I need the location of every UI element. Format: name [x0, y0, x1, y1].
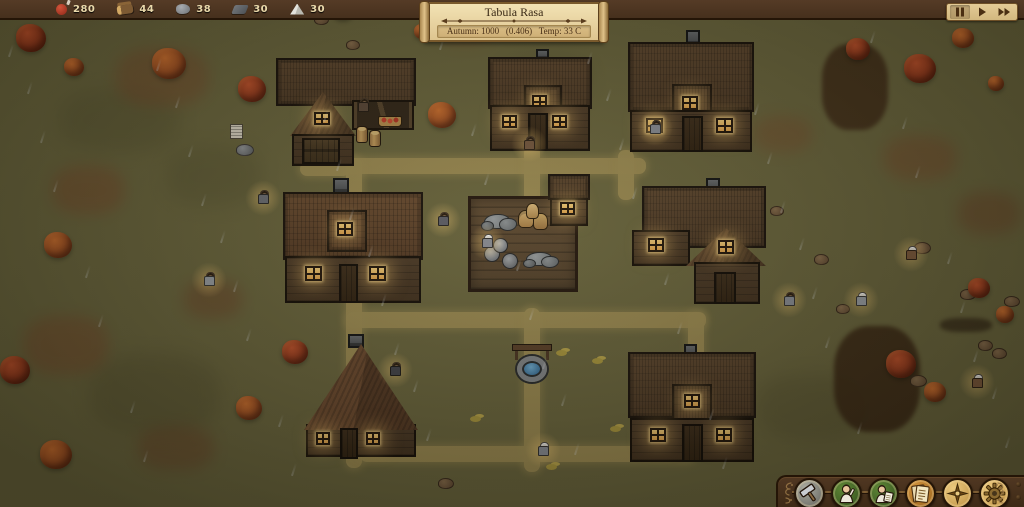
- autumn-tree[interactable]: [968, 278, 990, 298]
- door: [340, 428, 358, 459]
- build-menu-button[interactable]: [794, 478, 825, 507]
- door: [339, 264, 358, 303]
- window-lit: [716, 118, 733, 133]
- window-lit: [337, 222, 353, 236]
- window-lit: [314, 112, 330, 125]
- window-lit: [305, 266, 322, 281]
- autumn-tree[interactable]: [886, 350, 916, 378]
- door: [302, 138, 340, 164]
- resource-berries: 280: [56, 4, 95, 15]
- window-lit: [366, 432, 380, 445]
- sack-pile: [518, 210, 534, 228]
- autumn-tree[interactable]: [952, 28, 974, 48]
- window-lit: [650, 428, 666, 442]
- villager-icon: [833, 480, 860, 507]
- autumn-tree[interactable]: [238, 76, 266, 102]
- villager-body: [906, 250, 917, 260]
- ground-patch: [958, 192, 1020, 234]
- logs-icon: [117, 3, 134, 14]
- autumn-tree[interactable]: [904, 54, 936, 83]
- small-rock: [910, 375, 927, 387]
- season-status: Autumn: 1000 (0.406) Temp: 33 C: [437, 25, 591, 38]
- door: [714, 272, 736, 304]
- autumn-tree[interactable]: [428, 102, 456, 128]
- limestone-icon: [290, 4, 304, 15]
- villager[interactable]: [856, 292, 866, 306]
- barrel: [369, 130, 381, 147]
- resource-count: 30: [310, 4, 325, 15]
- villager-body: [538, 446, 549, 456]
- window-lit: [648, 238, 664, 252]
- stone-pile: [526, 252, 552, 266]
- window-lit: [502, 115, 517, 128]
- bottom-toolbar: [776, 475, 1024, 507]
- resource-logs: 44: [117, 4, 154, 15]
- villager-body: [258, 194, 269, 204]
- flourish-ornament: [994, 480, 1008, 506]
- villager[interactable]: [784, 292, 794, 306]
- storage-hut[interactable]: [548, 174, 590, 226]
- well-roof: [512, 344, 552, 351]
- papers-icon: [907, 480, 934, 507]
- villager[interactable]: [906, 246, 916, 260]
- villager-body: [438, 216, 449, 226]
- villager[interactable]: [358, 98, 368, 112]
- time-controls: [946, 3, 1018, 21]
- villager-body: [204, 276, 215, 286]
- professions-menu-button[interactable]: [868, 478, 899, 507]
- autumn-tree[interactable]: [282, 340, 308, 364]
- autumn-tree[interactable]: [988, 76, 1004, 91]
- ground-patch: [834, 326, 920, 432]
- fast-forward-button[interactable]: [994, 5, 1014, 19]
- window-lit: [682, 96, 698, 110]
- autumn-tree[interactable]: [996, 306, 1014, 323]
- ground-patch: [24, 316, 108, 374]
- toolbar-buttons: [794, 478, 1010, 507]
- villager-body: [650, 124, 661, 134]
- autumn-tree[interactable]: [0, 356, 30, 384]
- window-lit: [560, 202, 575, 215]
- hay-tuft: [592, 358, 603, 364]
- ground-patch: [90, 354, 220, 434]
- resource-count: 44: [139, 4, 154, 15]
- window-lit: [716, 428, 732, 442]
- autumn-tree[interactable]: [44, 232, 72, 258]
- house-bottom-right[interactable]: [628, 344, 756, 462]
- autumn-tree[interactable]: [40, 440, 72, 469]
- resource-slate: 30: [233, 4, 268, 15]
- world-map-button[interactable]: [942, 478, 973, 507]
- door: [682, 424, 703, 462]
- resource-count: 280: [73, 4, 95, 15]
- barrel: [356, 126, 368, 143]
- house-top-right[interactable]: [628, 30, 754, 152]
- house-top-center[interactable]: [488, 49, 592, 151]
- game-viewport: 28044383030 Tabula Rasa Autumn: 1000 (0.…: [0, 0, 1024, 507]
- autumn-tree[interactable]: [16, 24, 46, 52]
- hay-tuft: [546, 464, 557, 470]
- resource-count: 30: [253, 4, 268, 15]
- posted-sign[interactable]: [230, 124, 243, 139]
- toolbar-rivets: [1016, 482, 1021, 500]
- resource-list: 28044383030: [0, 4, 325, 15]
- villager[interactable]: [482, 234, 492, 248]
- villager-body: [358, 102, 369, 112]
- villager-body: [482, 238, 493, 248]
- autumn-tree[interactable]: [152, 48, 186, 79]
- villager-body: [784, 296, 795, 306]
- villager[interactable]: [438, 212, 448, 226]
- window-lit: [369, 266, 386, 281]
- villager[interactable]: [972, 374, 982, 388]
- small-rock: [236, 144, 254, 156]
- roof: [548, 174, 590, 200]
- slate-icon: [231, 5, 249, 14]
- door: [682, 116, 703, 152]
- villager[interactable]: [390, 362, 400, 376]
- small-rock: [814, 254, 829, 265]
- hay-tuft: [470, 416, 481, 422]
- resource-count: 38: [196, 4, 211, 15]
- barrel-cluster: [484, 246, 500, 262]
- villager-body: [972, 378, 983, 388]
- villager[interactable]: [258, 190, 268, 204]
- hay-tuft: [556, 350, 567, 356]
- villager-body: [856, 296, 867, 306]
- house-bottom-left[interactable]: [302, 332, 420, 460]
- village-map: [0, 0, 1024, 507]
- stone-pile: [484, 214, 510, 229]
- pause-button[interactable]: [950, 5, 970, 19]
- autumn-tree[interactable]: [924, 382, 946, 402]
- window-lit: [684, 394, 700, 408]
- villager[interactable]: [538, 442, 548, 456]
- villager[interactable]: [204, 272, 214, 286]
- villager-scroll-icon: [870, 480, 897, 507]
- well[interactable]: [510, 342, 554, 386]
- small-rock: [992, 348, 1007, 359]
- hammer-icon: [796, 480, 823, 507]
- villager[interactable]: [524, 136, 534, 150]
- villagers-menu-button[interactable]: [831, 478, 862, 507]
- resource-stone: 38: [176, 4, 211, 15]
- settlement-banner: Tabula Rasa Autumn: 1000 (0.406) Temp: 3…: [423, 2, 605, 42]
- ground-patch: [138, 426, 214, 470]
- hay-tuft: [610, 426, 621, 432]
- berry-icon: [56, 4, 67, 15]
- small-rock: [346, 40, 360, 50]
- compass-icon: [944, 480, 971, 507]
- small-rock: [836, 304, 850, 314]
- autumn-tree[interactable]: [236, 396, 262, 420]
- autumn-tree[interactable]: [64, 58, 84, 76]
- gable-roof: [304, 344, 418, 430]
- window-lit: [718, 240, 734, 254]
- house-mid-right[interactable]: [632, 178, 766, 306]
- window-lit: [316, 432, 330, 445]
- small-rock: [770, 206, 784, 216]
- villager[interactable]: [650, 120, 660, 134]
- villager-body: [390, 366, 401, 376]
- well-basin: [517, 356, 547, 382]
- tasks-menu-button[interactable]: [905, 478, 936, 507]
- rivet: [1016, 495, 1021, 500]
- autumn-tree[interactable]: [846, 38, 870, 60]
- ground-patch: [754, 116, 812, 152]
- resource-limestone: 30: [290, 4, 325, 15]
- storage-barn[interactable]: [276, 58, 416, 168]
- play-button[interactable]: [972, 5, 992, 19]
- window-lit: [552, 115, 567, 128]
- ground-patch: [884, 136, 956, 180]
- produce-basket: [378, 116, 402, 127]
- ground-patch: [940, 318, 992, 332]
- stone-icon: [176, 4, 190, 14]
- house-mid-left[interactable]: [283, 178, 423, 305]
- roof: [276, 58, 416, 106]
- rivet: [1016, 482, 1021, 487]
- villager-body: [524, 140, 535, 150]
- small-rock: [978, 340, 993, 351]
- small-rock: [438, 478, 454, 489]
- ground-patch: [52, 166, 124, 214]
- flourish-ornament: [781, 480, 795, 506]
